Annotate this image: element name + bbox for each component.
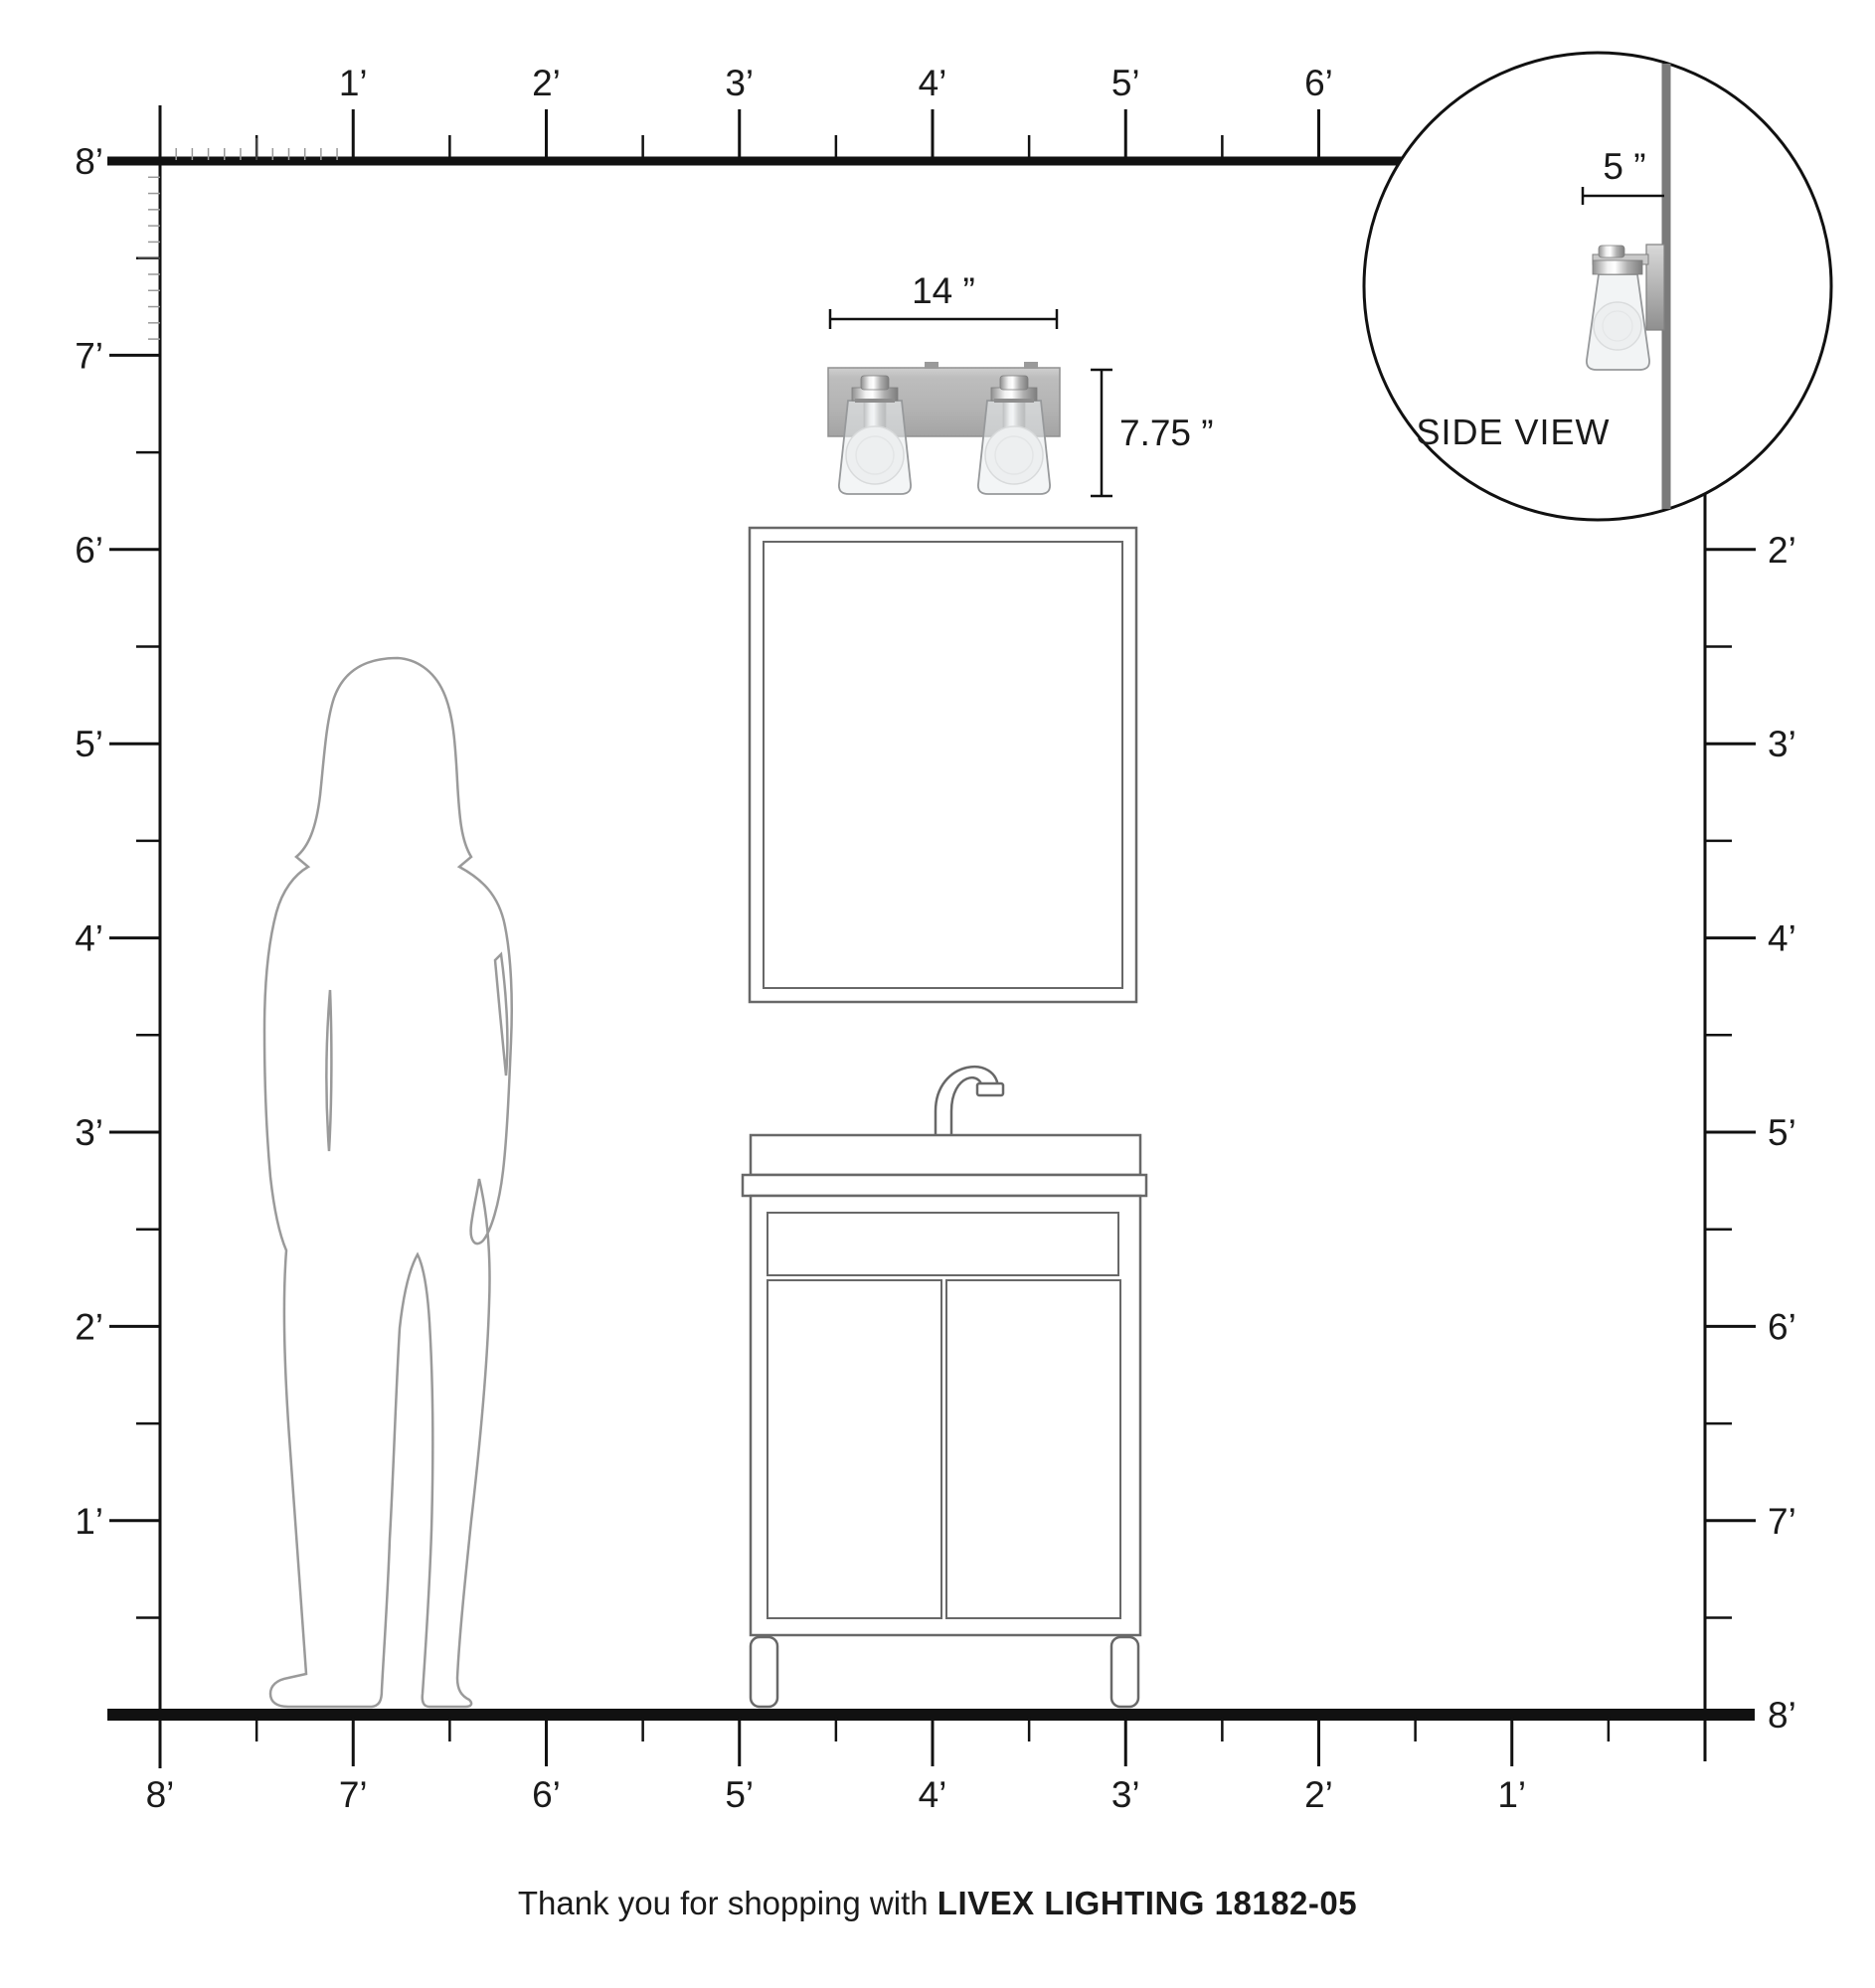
dimension-diagram: 1’2’3’4’5’6’8’7’6’5’4’3’2’1’2’3’4’5’6’7’… bbox=[0, 0, 1875, 1988]
ruler-label: 4’ bbox=[919, 63, 947, 103]
ruler-label: 5’ bbox=[75, 724, 103, 764]
ruler-label: 8’ bbox=[1768, 1695, 1796, 1736]
width-dimension-label: 14 ” bbox=[912, 270, 975, 311]
ruler-label: 2’ bbox=[75, 1306, 103, 1347]
vanity-left-door bbox=[767, 1280, 941, 1618]
ruler-label: 1’ bbox=[1497, 1774, 1526, 1815]
ruler-label: 5’ bbox=[725, 1774, 754, 1815]
lamp-flange-lip bbox=[855, 399, 895, 403]
side-view-label: SIDE VIEW bbox=[1416, 412, 1610, 452]
figure-outline bbox=[264, 658, 512, 1707]
ruler-label: 7’ bbox=[1768, 1501, 1796, 1542]
lamp-knob bbox=[861, 376, 889, 390]
ruler-label: 6’ bbox=[1304, 63, 1333, 103]
vanity-left-leg bbox=[751, 1637, 777, 1707]
sconce-backplate bbox=[1646, 245, 1664, 330]
depth-dimension-label: 5 ” bbox=[1603, 146, 1645, 187]
fixture-mount-tab-left bbox=[925, 362, 938, 369]
faucet-spout-tip bbox=[977, 1083, 1003, 1095]
ruler-label: 3’ bbox=[75, 1112, 103, 1153]
ruler-label: 7’ bbox=[75, 335, 103, 376]
side-view-inset: 5 ” SIDE VIEW bbox=[1364, 53, 1831, 520]
ruler-label: 2’ bbox=[1304, 1774, 1333, 1815]
vanity bbox=[743, 1067, 1146, 1707]
sconce-glass-shade bbox=[1587, 274, 1649, 370]
ruler-label: 4’ bbox=[919, 1774, 947, 1815]
footer-caption: Thank you for shopping with LIVEX LIGHTI… bbox=[0, 1885, 1875, 1922]
ruler-label: 6’ bbox=[1768, 1306, 1796, 1347]
ruler-label: 5’ bbox=[1111, 63, 1140, 103]
ruler-label: 6’ bbox=[532, 1774, 561, 1815]
ruler-label: 3’ bbox=[1111, 1774, 1140, 1815]
mirror-inner-frame bbox=[764, 542, 1122, 988]
height-dimension bbox=[1091, 370, 1112, 496]
ruler-label: 8’ bbox=[75, 141, 103, 182]
lamp-flange-lip bbox=[994, 399, 1034, 403]
mirror bbox=[750, 528, 1136, 1002]
height-dimension-label: 7.75 ” bbox=[1119, 413, 1214, 453]
ruler-label: 4’ bbox=[1768, 918, 1796, 959]
sconce-cap bbox=[1593, 260, 1642, 274]
sconce-knob bbox=[1599, 246, 1624, 257]
vanity-right-door bbox=[946, 1280, 1120, 1618]
footer-brand: LIVEX LIGHTING 18182-05 bbox=[937, 1885, 1357, 1921]
vanity-right-leg bbox=[1111, 1637, 1138, 1707]
ruler-label: 1’ bbox=[75, 1501, 103, 1542]
vanity-light-fixture: 14 ” 7.75 ” bbox=[828, 270, 1214, 496]
ruler-label: 2’ bbox=[532, 63, 561, 103]
figure-left-arm-gap bbox=[326, 990, 331, 1151]
vanity-countertop bbox=[743, 1175, 1146, 1196]
ruler-label: 5’ bbox=[1768, 1112, 1796, 1153]
ruler-label: 3’ bbox=[725, 63, 754, 103]
lamp-knob bbox=[1000, 376, 1028, 390]
figure-right-arm-gap bbox=[495, 954, 507, 1076]
width-dimension bbox=[830, 309, 1057, 329]
ruler-label: 1’ bbox=[339, 63, 368, 103]
vanity-drawer-panel bbox=[767, 1213, 1118, 1275]
footer-text: Thank you for shopping with bbox=[518, 1885, 937, 1921]
ruler-label: 8’ bbox=[146, 1774, 175, 1815]
vanity-backsplash bbox=[751, 1135, 1140, 1175]
ruler-label: 6’ bbox=[75, 530, 103, 571]
scale-figure bbox=[264, 658, 512, 1707]
glass-shade bbox=[839, 401, 911, 494]
ruler-label: 3’ bbox=[1768, 724, 1796, 764]
ruler-label: 7’ bbox=[339, 1774, 368, 1815]
ruler-label: 4’ bbox=[75, 918, 103, 959]
ruler-label: 2’ bbox=[1768, 530, 1796, 571]
fixture-mount-tab-right bbox=[1024, 362, 1038, 369]
glass-shade bbox=[978, 401, 1050, 494]
diagram-canvas: 1’2’3’4’5’6’8’7’6’5’4’3’2’1’2’3’4’5’6’7’… bbox=[0, 0, 1875, 1988]
